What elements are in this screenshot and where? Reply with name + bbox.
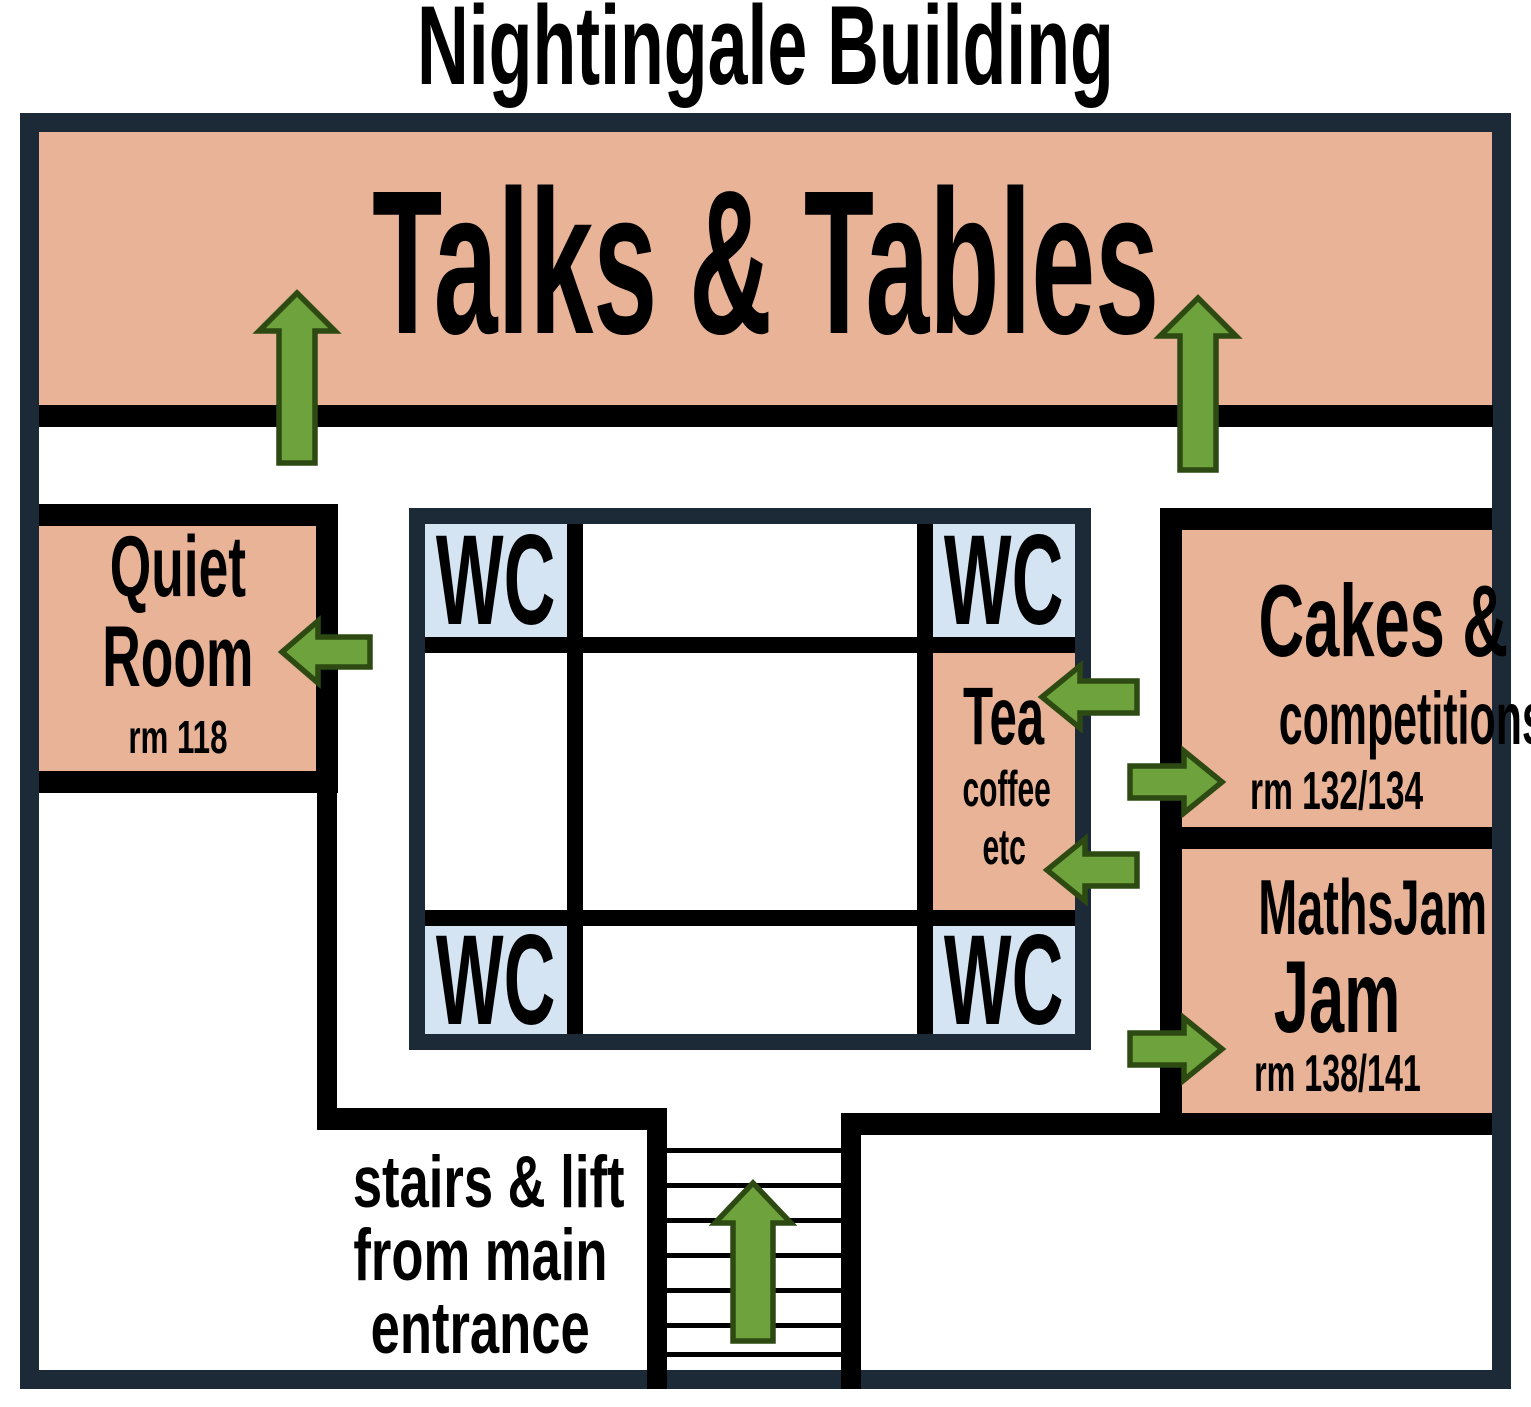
- left-corridor-wall: [317, 793, 337, 1130]
- stairs-label: stairs & lift from main entrance: [300, 1146, 660, 1365]
- tea-room-sub2: etc: [933, 822, 1075, 872]
- stair-tread: [667, 1352, 841, 1357]
- quiet-room-bottom-wall: [39, 771, 338, 793]
- stairs-label-line3: entrance: [300, 1292, 660, 1365]
- stair-tread: [667, 1323, 841, 1328]
- cakes-room-left-wall: [1160, 508, 1182, 849]
- cakes-mathsjam-divider-wall: [1160, 827, 1492, 849]
- central-block-wall-horizontal-lower: [425, 910, 1075, 926]
- floor-plan: Nightingale Building Talks & Tables Quie…: [0, 0, 1531, 1407]
- corridor-wall-left-horizontal: [317, 1108, 667, 1130]
- mathsjam-room-label: MathsJam Jam rm 138/141: [1182, 868, 1492, 1100]
- mathsjam-room-name-line1: MathsJam: [1182, 868, 1492, 946]
- page-title: Nightingale Building: [0, 0, 1531, 102]
- stairs-label-line2: from main: [300, 1219, 660, 1292]
- central-block-wall-horizontal-upper: [425, 637, 1075, 653]
- cakes-room-name-line2: competitions: [1182, 682, 1492, 756]
- stair-tread: [667, 1288, 841, 1293]
- stair-tread: [667, 1183, 841, 1188]
- central-block-wall-vertical-left: [567, 524, 583, 1034]
- cakes-room-number: rm 132/134: [1182, 764, 1492, 818]
- cakes-room-name-line1: Cakes &: [1182, 570, 1492, 672]
- stair-tread: [667, 1148, 841, 1153]
- cakes-room-top-wall: [1160, 508, 1492, 530]
- stair-tread: [667, 1218, 841, 1223]
- central-block-wall-vertical-right: [917, 524, 933, 1034]
- mathsjam-room-left-wall: [1160, 849, 1182, 1135]
- tea-room-label: Tea coffee etc: [933, 676, 1075, 872]
- stairs-label-line1: stairs & lift: [300, 1146, 660, 1219]
- quiet-room-right-wall: [316, 504, 338, 793]
- stair-tread: [667, 1253, 841, 1258]
- cakes-room-label: Cakes & competitions rm 132/134: [1182, 570, 1492, 818]
- tea-room-name: Tea: [933, 676, 1075, 758]
- quiet-room-label: Quiet Room rm 118: [39, 524, 316, 760]
- talks-room-label: Talks & Tables: [39, 160, 1493, 365]
- mathsjam-room-name-line2: Jam: [1182, 946, 1492, 1048]
- tea-room-sub1: coffee: [933, 764, 1075, 814]
- quiet-room-name-line1: Quiet: [39, 524, 316, 610]
- stairwell-right-wall: [841, 1113, 861, 1389]
- quiet-room-name-line2: Room: [39, 614, 316, 700]
- mathsjam-room-number: rm 138/141: [1182, 1048, 1492, 1100]
- talks-room-wall: [39, 405, 1493, 427]
- quiet-room-number: rm 118: [39, 714, 316, 760]
